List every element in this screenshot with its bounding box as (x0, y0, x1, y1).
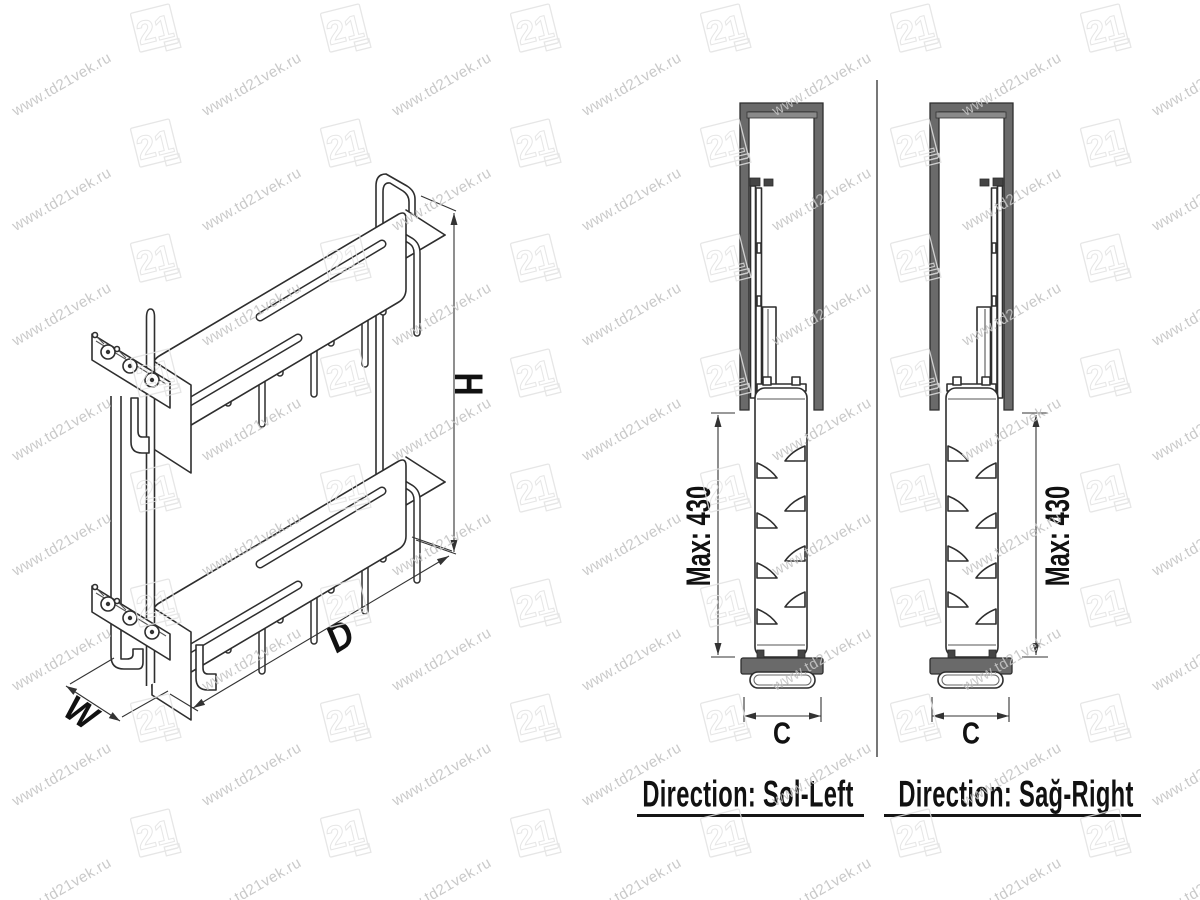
watermark-logo-icon: 21 (888, 1, 942, 59)
watermark-text: www.td21vek.ru (959, 854, 1064, 900)
svg-text:21: 21 (513, 7, 558, 52)
watermark-text: www.td21vek.ru (389, 854, 494, 900)
svg-text:21: 21 (1083, 7, 1128, 52)
watermark-logo-icon: 21 (128, 806, 182, 864)
upper-basket (152, 210, 445, 473)
side-view-left (711, 103, 823, 722)
svg-text:21: 21 (513, 812, 558, 857)
max-430-label-left: Max: 430 (682, 486, 716, 587)
watermark-text: www.td21vek.ru (769, 854, 874, 900)
slide-rail-mechanism (750, 178, 776, 398)
top-rail (936, 112, 1006, 118)
watermark-logo-icon: 21 (508, 806, 562, 864)
watermark-logo-icon: 21 (508, 1, 562, 59)
watermark-text: www.td21vek.ru (579, 854, 684, 900)
direction-label-right: Direction: Sağ-Right (898, 776, 1133, 813)
svg-text:21: 21 (133, 812, 178, 857)
watermark-logo-icon: 21 (318, 1, 372, 59)
svg-text:21: 21 (703, 812, 748, 857)
svg-text:21: 21 (323, 7, 368, 52)
watermark-logo-icon: 21 (128, 1, 182, 59)
watermark-logo-icon: 21 (1078, 1, 1132, 59)
slide-rail-mechanism (977, 178, 1003, 398)
svg-text:21: 21 (893, 812, 938, 857)
watermark-text: www.td21vek.ru (1149, 854, 1200, 900)
svg-text:21: 21 (703, 7, 748, 52)
side-views (600, 70, 1200, 770)
svg-text:21: 21 (323, 812, 368, 857)
isometric-view (20, 80, 520, 800)
c-dimension-label-right: C (962, 718, 980, 749)
svg-text:21: 21 (893, 7, 938, 52)
watermark-logo-icon: 21 (698, 1, 752, 59)
c-dimension-label-left: C (773, 718, 791, 749)
height-dimension-label: H (448, 372, 488, 395)
side-view-right (930, 103, 1048, 722)
max-430-label-right: Max: 430 (1041, 486, 1075, 587)
watermark-logo-icon: 21 (318, 806, 372, 864)
direction-underline-left (637, 814, 864, 817)
basket-front-view (946, 388, 998, 657)
watermark-text: www.td21vek.ru (9, 854, 114, 900)
top-rail (747, 112, 817, 118)
direction-underline-right (884, 814, 1141, 817)
svg-text:21: 21 (1083, 812, 1128, 857)
watermark-text: www.td21vek.ru (199, 854, 304, 900)
direction-label-left: Direction: Sol-Left (642, 776, 853, 813)
basket-front-view (755, 388, 807, 657)
diagram-canvas: H D W Max: 430 Max: 430 C C Direction: S… (0, 0, 1200, 900)
svg-text:21: 21 (133, 7, 178, 52)
